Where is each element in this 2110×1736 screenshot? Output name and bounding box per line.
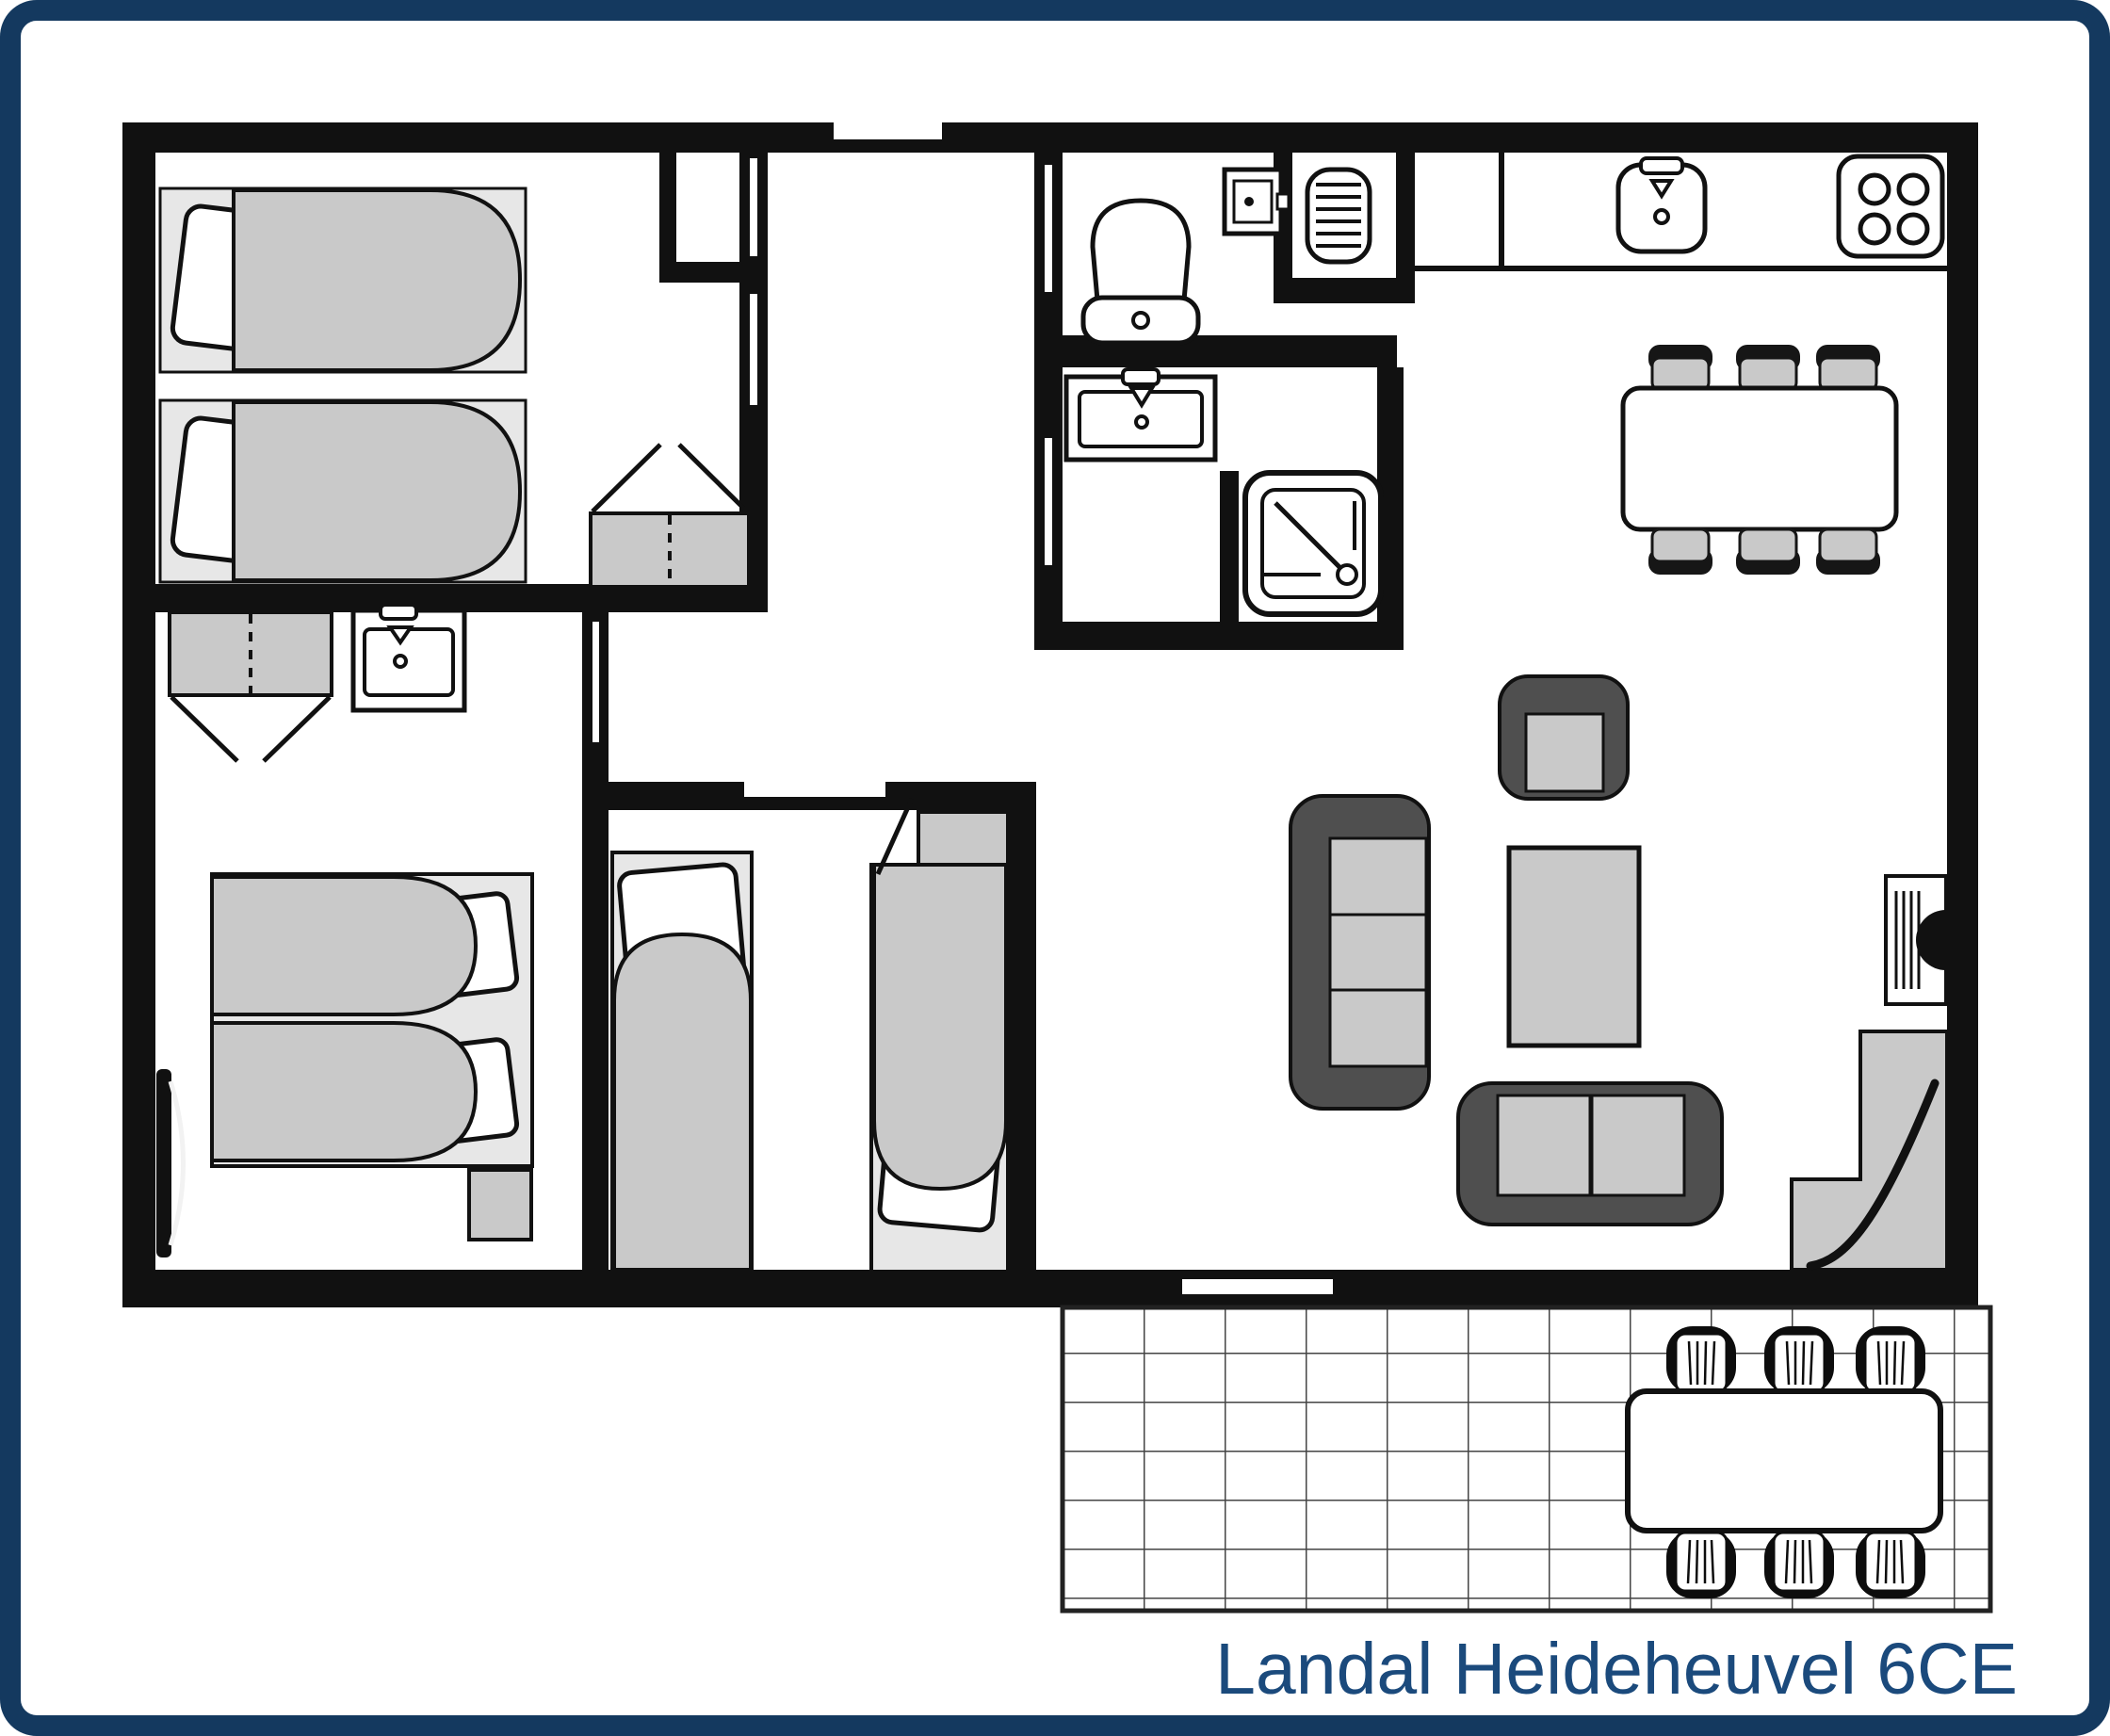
coffee-table — [1509, 848, 1639, 1046]
shower-drain — [1338, 565, 1356, 584]
bedroom2-door-opening — [592, 622, 599, 742]
wall-bathroom-bottom — [1034, 622, 1404, 650]
washbasin-icon — [1066, 369, 1215, 460]
dining-table — [1623, 388, 1896, 529]
burner — [1860, 175, 1889, 203]
nightstand — [469, 1170, 531, 1240]
entrance-door-opening — [834, 122, 942, 139]
double-bed — [212, 874, 532, 1166]
loveseat-cushion — [1592, 1095, 1684, 1195]
tap — [381, 605, 416, 619]
kitchen — [1415, 153, 1947, 271]
floorplan-svg: Landal Heideheuvel 6CE — [0, 0, 2110, 1736]
drain — [1655, 210, 1668, 223]
toilet-icon — [1083, 201, 1198, 343]
kitchen-sink-icon — [1618, 158, 1705, 251]
washbasin-icon — [353, 605, 464, 710]
burner — [1899, 175, 1927, 203]
toilet-bowl — [1093, 201, 1189, 311]
single-bed-2 — [160, 400, 526, 582]
sofa-cushions — [1330, 838, 1426, 1066]
drain — [395, 656, 406, 667]
dining-chair — [1816, 529, 1880, 575]
dining-chair — [1816, 345, 1880, 390]
basin — [365, 629, 453, 695]
terrace-door-opening — [1182, 1279, 1333, 1294]
bathroom-door-opening — [1045, 438, 1052, 565]
kitchen-counter-edge — [1415, 266, 1947, 271]
armchair-cushion — [1526, 714, 1603, 791]
tap — [1123, 369, 1159, 384]
terrace — [1063, 1307, 1990, 1611]
bedroom1-door-opening — [750, 294, 757, 405]
dining-chair — [1648, 529, 1712, 575]
dining-chair — [1648, 345, 1712, 390]
closet-door-opening — [750, 158, 757, 256]
garden-chair — [1764, 1531, 1834, 1598]
ventilation-box-icon — [1225, 170, 1289, 234]
wall-bedroom3-living — [1008, 782, 1036, 1270]
radiator-bar — [156, 1069, 171, 1257]
duvet — [212, 1023, 476, 1160]
duvet — [234, 402, 520, 580]
single-bed-right — [871, 865, 1008, 1272]
wall-shower-left — [1220, 471, 1239, 622]
toilet-flush — [1133, 313, 1148, 328]
stove-icon — [1839, 156, 1942, 256]
burner — [1860, 215, 1889, 243]
wall-niche-bottom — [1274, 278, 1415, 303]
kitchen-counter-divider — [1499, 153, 1504, 271]
fireplace-icon — [1886, 876, 1946, 1004]
wall-outer-left — [122, 122, 155, 1307]
sofa-3-seat — [1290, 796, 1429, 1109]
shower-icon — [1245, 473, 1381, 614]
wall-closet-bottom — [659, 262, 768, 283]
wall-niche-right — [1396, 153, 1415, 303]
burner — [1899, 215, 1927, 243]
stove-top — [1839, 156, 1942, 256]
wall-outer-top — [122, 122, 1978, 153]
garden-chair — [1856, 1531, 1925, 1598]
loveseat-cushion — [1498, 1095, 1590, 1195]
dining-chair — [1736, 345, 1800, 390]
bedroom3-door-opening — [744, 782, 885, 797]
loveseat-2-seat — [1458, 1083, 1722, 1225]
dining-chair — [1736, 529, 1800, 575]
box-knob — [1277, 194, 1289, 209]
drain — [1136, 416, 1147, 428]
floor-plan-title: Landal Heideheuvel 6CE — [1215, 1629, 2018, 1710]
floorplan-page: Landal Heideheuvel 6CE — [0, 0, 2110, 1736]
tap — [1641, 158, 1682, 173]
dining-area — [1623, 345, 1896, 575]
duvet — [874, 865, 1006, 1189]
wall-outer-right — [1947, 122, 1978, 1307]
single-bed-1 — [160, 188, 526, 372]
wall-outer-bottom — [122, 1270, 1978, 1307]
toilet-door-opening — [1045, 165, 1052, 292]
single-bed-left — [612, 852, 752, 1272]
duvet — [614, 934, 751, 1270]
garden-table — [1628, 1391, 1940, 1531]
box-dot — [1244, 197, 1254, 206]
duvet — [212, 877, 476, 1014]
cabinet — [918, 812, 1008, 867]
utility-niche — [1307, 170, 1370, 262]
garden-chair — [1666, 1326, 1736, 1394]
radiator-icon — [1307, 170, 1370, 262]
garden-chair — [1856, 1326, 1925, 1394]
duvet — [234, 190, 520, 370]
armchair — [1500, 676, 1628, 799]
garden-chair — [1666, 1531, 1736, 1598]
garden-chair — [1764, 1326, 1834, 1394]
